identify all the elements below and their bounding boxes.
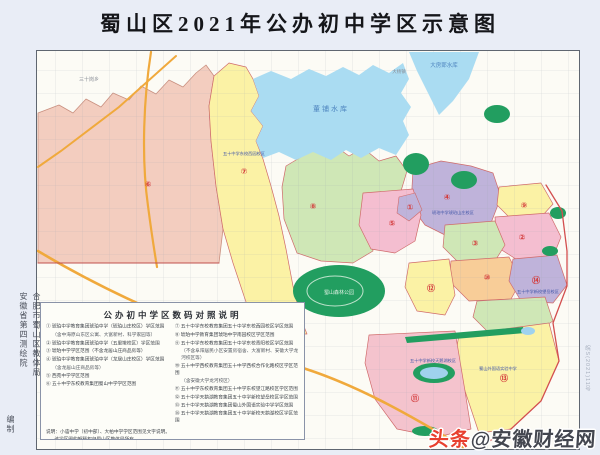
district-number: ⑥ [145,180,152,189]
district-number: ⑬ [500,373,508,383]
legend-item: ③ 琥珀中学学区范围（不含龙居山庄商品房等） [46,348,170,355]
legend-item: ⑨ 五十中学东校教育集团五十中学东校青阳校区学区范围 [175,339,299,346]
label-school: 五十中学新校望岳校区 [517,288,559,295]
park-blob [542,246,558,256]
legend-left-column: ① 琥珀中学教育集团琥珀中学（琥珀山庄校区）学区范围 （含中海原山东区公寓、大富… [46,323,170,425]
park-blob [550,207,566,219]
legend-item: ⑬ 五十中学天鹅湖教育集团蜀山外国语实验中学学区范围 [175,402,299,409]
legend-item: ⑫ 五十中学天鹅湖教育集团五十中学新校望岳校区学区范围 [175,394,299,401]
district-number: ⑩ [484,273,491,282]
legend-note: 该学区图的解释权归蜀山区教体局所有。 [46,436,299,440]
label-forest-park: 蜀山森林公园 [324,289,354,296]
district-number: ② [519,233,526,242]
label-dongpu-reservoir: 董铺水库 [313,104,349,113]
legend-item: ⑧ 琥珀中学教育集团琥珀中学南园校区学区范围 [175,331,299,338]
legend-item: ① 琥珀中学教育集团琥珀中学（琥珀山庄校区）学区范围 [46,323,170,330]
district-number: ① [407,203,414,212]
legend-box: 公办初中学区数码对照说明 ① 琥珀中学教育集团琥珀中学（琥珀山庄校区）学区范围 … [40,302,305,440]
legend-title: 公办初中学区数码对照说明 [46,309,299,321]
watermark-platform: 头条 [429,429,473,451]
label-town-nw: 三十岗乡 [79,76,99,83]
legend-item: ⑥ 五十中学东校教育集团蜀山中学学区范围 [46,380,170,387]
page: 蜀山区2021年公办初中学区示意图 [0,0,600,455]
label-school: 五十中学东校西园校区 [223,150,265,157]
label-school: 蜀山外国语实验中学 [479,365,517,372]
district-number: ⑦ [241,167,248,176]
district-number: ④ [444,193,451,202]
district-number: ⑨ [521,201,528,210]
park-blob [451,171,477,189]
legend-item: ⑤ 西苑中学学区范围 [46,372,170,379]
legend-item: ⑭ 五十中学天鹅湖教育集团五十中学新校天鹅湖校区学区范围 [175,410,299,423]
legend-right-column: ⑦ 五十中学东校教育集团五十中学东校西园校区学区范围 ⑧ 琥珀中学教育集团琥珀中… [175,323,299,425]
legend-content: ① 琥珀中学教育集团琥珀中学（琥珀山庄校区）学区范围 （含中海原山东区公寓、大富… [46,323,299,440]
legend-item-continuation: （含中海原山东区公寓、大富新村、科学家园等） [46,331,170,338]
legend-item-continuation: （含安徽大学龙河校区） [175,377,299,384]
district-number: ⑧ [310,202,317,211]
credit-agency-2: 安徽省第四测绘院 [18,292,29,434]
credits: 合肥市蜀山区教体局 安徽省第四测绘院 编制 [5,292,42,434]
district-number: ⑫ [427,283,435,293]
district-number: ⑭ [532,275,540,285]
legend-item: ⑪ 五十中学东校教育集团五十中学东校望江路校区学区范围 [175,385,299,392]
label-school: 五十中学新校天鹅湖校区 [410,357,456,364]
page-title: 蜀山区2021年公办初中学区示意图 [0,8,600,38]
label-town-n: 大杨镇 [392,68,406,75]
small-pond [521,327,535,335]
park-blob [484,105,510,123]
legend-item-continuation: （不含阜阳居民小区安置房宿舍、大富新村、安徽大学龙河校区等） [175,348,299,361]
label-dafangying-reservoir: 大房郢水库 [430,61,458,69]
credit-role: 编制 [5,415,16,434]
legend-item: ⑦ 五十中学东校教育集团五十中学东校西园校区学区范围 [175,323,299,330]
watermark-account: @安徽财经网 [471,429,598,451]
legend-note: 说明：小庙中学（初中部）、大柏中学学区范围见文字说明。 [46,429,299,436]
district-number: ⑪ [411,393,419,403]
legend-item: ④ 琥珀中学教育集团琥珀中学（龙居山庄校区）学区范围 [46,356,170,363]
legend-item: ② 琥珀中学教育集团琥珀中学（五里墩校区）学区范围 [46,339,170,346]
district-number: ⑤ [389,219,396,228]
map-approval-number: 皖S(2021)11号 [583,345,591,392]
park-blob [403,153,429,175]
legend-item-continuation: （含龙居山庄商品房等） [46,364,170,371]
legend-item: ⑩ 五十中学西校教育集团五十中学西校合作化路校区学区范围 [175,362,299,375]
label-school: 琥珀中学琥珀山庄校区 [432,209,474,216]
district-number: ③ [472,239,479,248]
watermark: 头条@安徽财经网 [428,423,598,452]
swan-lake [420,367,448,379]
